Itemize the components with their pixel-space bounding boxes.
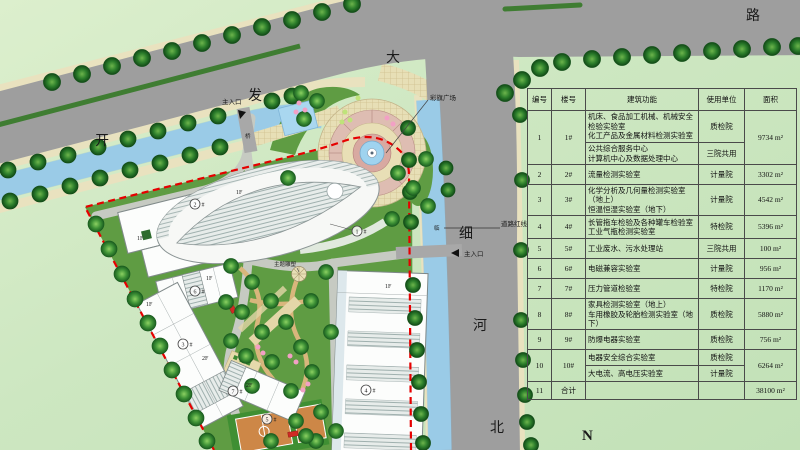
cell-area: 5880 m²	[745, 299, 797, 330]
cell-bldg: 9#	[552, 330, 586, 350]
road-xihe-north	[468, 40, 476, 450]
cell-bldg: 3#	[552, 185, 586, 216]
cell-no: 10	[528, 350, 552, 382]
cell-area: 5396 m²	[745, 216, 797, 239]
col-header-area: 面积	[745, 89, 797, 111]
cell-func: 压力管道检验室	[586, 279, 699, 299]
cell-no: 8	[528, 299, 552, 330]
svg-text:#: #	[373, 388, 376, 394]
cell-unit: 计量院	[699, 259, 745, 279]
road-name-xi: 细	[459, 226, 473, 242]
cell-func: 电器安全综合实验室	[586, 350, 699, 366]
cell-unit: 质检院	[699, 330, 745, 350]
col-header-func: 建筑功能	[586, 89, 699, 111]
cell-bldg: 5#	[552, 239, 586, 259]
svg-text:#: #	[202, 289, 205, 295]
road-name-fa: 发	[248, 88, 262, 104]
table-row: 2 2# 流量检测实验室 计量院 3302 m²	[528, 165, 797, 185]
svg-text:3: 3	[182, 342, 185, 348]
cell-no: 6	[528, 259, 552, 279]
road-name-lu: 路	[746, 8, 760, 24]
cell-unit: 计量院	[699, 165, 745, 185]
cell-area: 1170 m²	[745, 279, 797, 299]
cell-no: 11	[528, 382, 552, 400]
cell-bldg: 10#	[552, 350, 586, 382]
cell-no: 4	[528, 216, 552, 239]
road-red-line-label: 道路红线	[501, 219, 528, 228]
floor-label: 2F	[202, 356, 209, 362]
cell-unit: 计量院	[699, 366, 745, 382]
cell-area: 9734 m²	[745, 111, 797, 165]
cell-func: 大电流、高电压实验室	[586, 366, 699, 382]
cell-unit: 质检院	[699, 299, 745, 330]
building-4	[332, 270, 428, 450]
table-row: 9 9# 防爆电器实验室 质检院 756 m²	[528, 330, 797, 350]
cell-bldg: 合计	[552, 382, 586, 400]
site-plan-canvas: 开 发 大 路 细 河 北 N 主入口 主入口 道路红线 彩旗广场 主题雕塑 桥…	[0, 0, 800, 450]
theme-sculpture-plaza	[292, 267, 307, 282]
svg-text:2: 2	[194, 202, 197, 208]
cell-bldg: 1#	[552, 111, 586, 165]
cell-unit: 三院共用	[699, 239, 745, 259]
bridge-label: 桥	[245, 132, 251, 140]
road-name-bei: 北	[490, 420, 504, 436]
col-header-bldg: 楼号	[552, 89, 586, 111]
cell-unit: 三院共用	[699, 143, 745, 165]
svg-text:#: #	[240, 389, 243, 395]
table-row: 1 1# 机床、食品加工机械、机械安全检验实验室 化工产品及金属材料检测实验室 …	[528, 111, 797, 143]
table-row: 10 10# 电器安全综合实验室 质检院 6264 m²	[528, 350, 797, 366]
cell-bldg: 8#	[552, 299, 586, 330]
table-row: 7 7# 压力管道检验室 特检院 1170 m²	[528, 279, 797, 299]
cell-func: 公共综合服务中心 计算机中心及数据处理中心	[586, 143, 699, 165]
svg-text:5: 5	[266, 417, 269, 423]
svg-text:4: 4	[365, 388, 368, 394]
cell-func: 工业废水、污水处理站	[586, 239, 699, 259]
floor-label: 2F	[246, 383, 253, 389]
cell-no: 7	[528, 279, 552, 299]
cell-func: 流量检测实验室	[586, 165, 699, 185]
cell-func	[586, 382, 699, 400]
north-letter: N	[582, 428, 593, 444]
cell-unit: 质检院	[699, 350, 745, 366]
floor-label: 1F	[137, 236, 144, 242]
building-function-table: 编号 楼号 建筑功能 使用单位 面积 1 1# 机床、食品加工机械、机械安全检验…	[527, 88, 797, 400]
cell-func: 机床、食品加工机械、机械安全检验实验室 化工产品及金属材料检测实验室	[586, 111, 699, 143]
cell-func: 防爆电器实验室	[586, 330, 699, 350]
table-row-total: 11 合计 38100 m²	[528, 382, 797, 400]
table-header-row: 编号 楼号 建筑功能 使用单位 面积	[528, 89, 797, 111]
cell-bldg: 2#	[552, 165, 586, 185]
svg-text:7: 7	[232, 389, 235, 395]
cell-bldg: 4#	[552, 216, 586, 239]
col-header-unit: 使用单位	[699, 89, 745, 111]
road-name-kai: 开	[95, 134, 109, 149]
cell-func: 家具检测实验室（地上） 车用橡胶及轮胎检测实验室（地下）	[586, 299, 699, 330]
floor-label: 1F	[206, 276, 213, 282]
cell-no: 5	[528, 239, 552, 259]
table-row: 8 8# 家具检测实验室（地上） 车用橡胶及轮胎检测实验室（地下） 质检院 58…	[528, 299, 797, 330]
entry-bridge-north	[243, 108, 251, 152]
cell-func: 电磁兼容实验室	[586, 259, 699, 279]
cell-unit: 特检院	[699, 216, 745, 239]
svg-text:#: #	[202, 202, 205, 208]
cell-bldg: 7#	[552, 279, 586, 299]
cell-area: 756 m²	[745, 330, 797, 350]
road-name-da: 大	[386, 50, 400, 66]
cell-unit	[699, 382, 745, 400]
main-entrance-side-label: 主入口	[464, 249, 484, 258]
svg-text:#: #	[364, 229, 367, 235]
flag-plaza-label: 彩旗广场	[430, 93, 457, 102]
main-entrance-top-label: 主入口	[222, 97, 242, 106]
cell-no: 9	[528, 330, 552, 350]
floor-label: 1F	[236, 190, 243, 196]
cell-func: 长管拖车检验及各种罐车检验室 工业气瓶检测实验室	[586, 216, 699, 239]
theme-sculpture-label: 主题雕塑	[274, 260, 297, 268]
svg-text:#: #	[274, 417, 277, 423]
cell-no: 1	[528, 111, 552, 165]
cell-area: 3302 m²	[745, 165, 797, 185]
cell-area: 38100 m²	[745, 382, 797, 400]
table-row: 3 3# 化学分析及几何量检测实验室（地上） 恒温恒湿实验室（地下） 计量院 4…	[528, 185, 797, 216]
road-name-he: 河	[473, 318, 487, 334]
col-header-no: 编号	[528, 89, 552, 111]
table-row: 5 5# 工业废水、污水处理站 三院共用 100 m²	[528, 239, 797, 259]
cell-bldg: 6#	[552, 259, 586, 279]
floor-label: 1F	[146, 302, 153, 308]
svg-text:6: 6	[194, 289, 197, 295]
cell-area: 4542 m²	[745, 185, 797, 216]
canal-label: 临	[434, 224, 440, 232]
cell-no: 2	[528, 165, 552, 185]
cell-unit: 计量院	[699, 185, 745, 216]
cell-func: 化学分析及几何量检测实验室（地上） 恒温恒湿实验室（地下）	[586, 185, 699, 216]
table-row: 6 6# 电磁兼容实验室 计量院 956 m²	[528, 259, 797, 279]
cell-no: 3	[528, 185, 552, 216]
table-row: 4 4# 长管拖车检验及各种罐车检验室 工业气瓶检测实验室 特检院 5396 m…	[528, 216, 797, 239]
svg-text:#: #	[190, 342, 193, 348]
cell-area: 6264 m²	[745, 350, 797, 382]
cell-area: 956 m²	[745, 259, 797, 279]
cell-unit: 特检院	[699, 279, 745, 299]
floor-label: 1F	[385, 284, 392, 290]
svg-text:1: 1	[356, 229, 359, 235]
cell-unit: 质检院	[699, 111, 745, 143]
cell-area: 100 m²	[745, 239, 797, 259]
